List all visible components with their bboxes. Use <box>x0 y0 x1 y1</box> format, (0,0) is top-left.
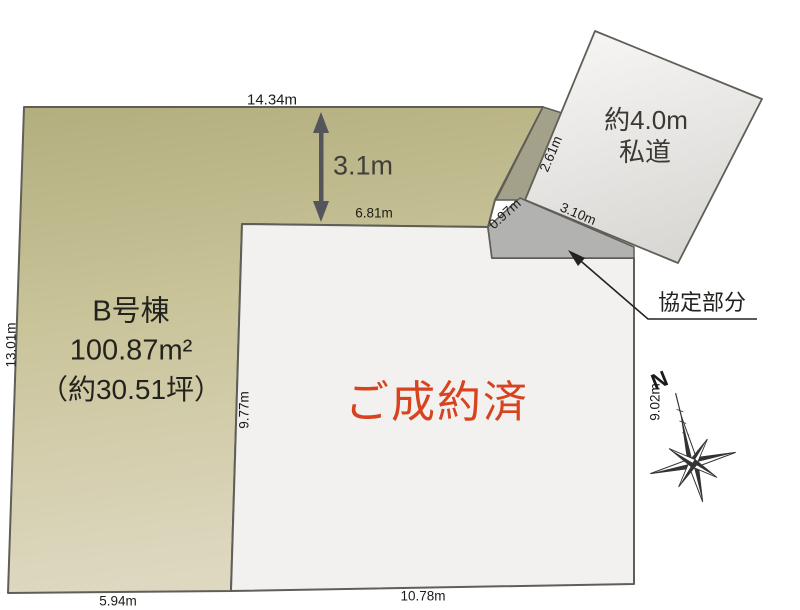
dimension-bottom-left: 5.94m <box>99 594 137 608</box>
agreement-portion-label: 協定部分 <box>658 292 746 314</box>
private-road-label: 私道 <box>619 139 671 165</box>
dimension-sold-left: 9.77m <box>237 391 251 429</box>
parcel-area-label: 100.87m² <box>70 337 193 366</box>
dimension-top-edge: 14.34m <box>247 93 297 108</box>
sold-status-label: ご成約済 <box>345 381 529 425</box>
dimension-sold-top: 6.81m <box>355 206 393 220</box>
private-road-width-label: 約4.0m <box>604 107 688 133</box>
parcel-name-label: B号棟 <box>92 298 169 327</box>
dimension-setback: 3.1m <box>333 153 393 180</box>
dimension-sold-right: 9.02m <box>648 383 662 421</box>
parcel-area-tsubo-label: （約30.51坪） <box>40 376 222 404</box>
dimension-left-edge: 13.01m <box>4 322 18 367</box>
plot-plan: N 14.34m 3.1m 6.81m 13.01m 9.77m 9.02m 5… <box>0 0 800 610</box>
dimension-bottom-right: 10.78m <box>400 589 445 603</box>
compass-rose: N <box>626 353 746 512</box>
